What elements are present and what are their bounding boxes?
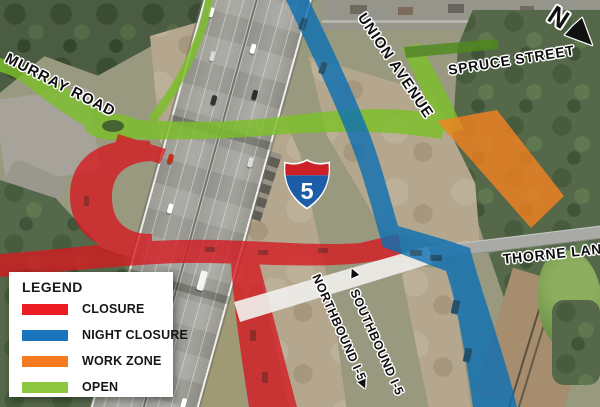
legend-row-closure: CLOSURE	[22, 302, 173, 316]
legend-row-night-closure: NIGHT CLOSURE	[22, 328, 173, 342]
closure-map: 5 MURRAY ROAD UNION AVENUE SPRUCE STREET…	[0, 0, 600, 407]
roundabout-center-tree	[102, 120, 124, 132]
legend-row-work-zone: WORK ZONE	[22, 354, 173, 368]
open-path-north	[148, 0, 213, 122]
legend-label-open: OPEN	[82, 380, 118, 394]
legend: LEGEND CLOSURE NIGHT CLOSURE WORK ZONE O…	[9, 272, 173, 397]
work-zone-overlay	[437, 110, 564, 228]
legend-row-open: OPEN	[22, 380, 173, 394]
north-arrow-icon	[561, 14, 595, 48]
legend-label-night-closure: NIGHT CLOSURE	[82, 328, 188, 342]
open-murray-overpass-band	[0, 58, 447, 139]
open-swatch	[22, 382, 68, 393]
shield-route-number: 5	[300, 178, 313, 204]
closure-crossroad-band	[0, 234, 403, 277]
night-closure-swatch	[22, 330, 68, 341]
legend-label-work-zone: WORK ZONE	[82, 354, 162, 368]
legend-label-closure: CLOSURE	[82, 302, 145, 316]
interstate-5-shield: 5	[284, 156, 330, 212]
closure-south-road	[231, 261, 297, 407]
work-zone-swatch	[22, 356, 68, 367]
closure-loop-ramp	[70, 140, 152, 256]
legend-title: LEGEND	[22, 279, 173, 295]
closure-swatch	[22, 304, 68, 315]
